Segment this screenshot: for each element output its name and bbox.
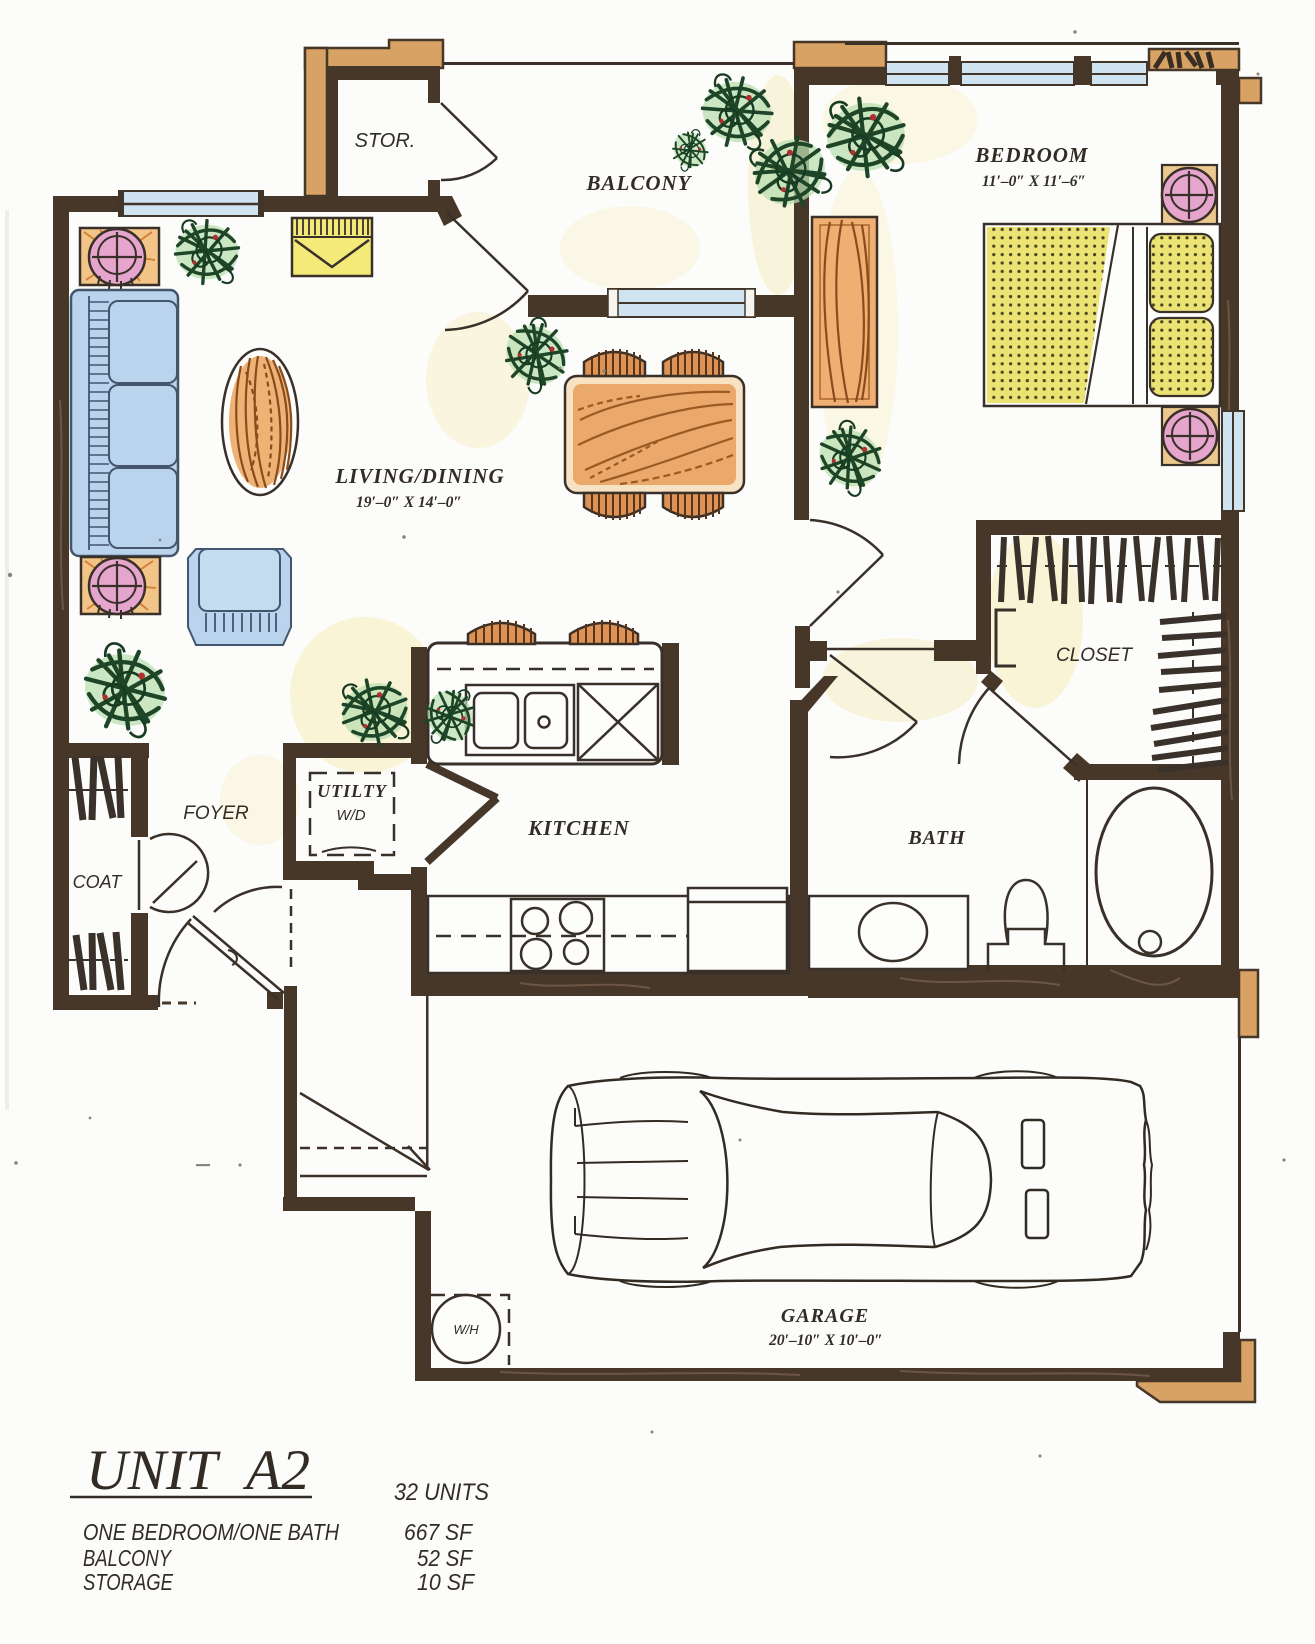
svg-text:BEDROOM: BEDROOM bbox=[974, 143, 1089, 167]
svg-text:W/H: W/H bbox=[453, 1322, 479, 1337]
svg-text:19′–0″ X 14′–0″: 19′–0″ X 14′–0″ bbox=[356, 494, 462, 511]
svg-text:CLOSET: CLOSET bbox=[1056, 645, 1133, 666]
svg-text:BALCONY: BALCONY bbox=[83, 1545, 172, 1571]
svg-text:STOR.: STOR. bbox=[355, 130, 416, 152]
svg-text:COAT: COAT bbox=[73, 872, 124, 892]
svg-text:20′–10″ X 10′–0″: 20′–10″ X 10′–0″ bbox=[768, 1332, 883, 1349]
svg-text:W/D: W/D bbox=[336, 807, 365, 824]
svg-text:UNIT A2: UNIT A2 bbox=[86, 1439, 310, 1502]
svg-text:KITCHEN: KITCHEN bbox=[527, 816, 630, 840]
svg-text:10 SF: 10 SF bbox=[417, 1569, 476, 1595]
svg-text:STORAGE: STORAGE bbox=[83, 1569, 174, 1595]
svg-text:GARAGE: GARAGE bbox=[781, 1305, 869, 1327]
svg-text:52 SF: 52 SF bbox=[417, 1545, 474, 1571]
svg-text:32 UNITS: 32 UNITS bbox=[394, 1479, 489, 1506]
svg-text:11′–0″ X 11′–6″: 11′–0″ X 11′–6″ bbox=[982, 173, 1086, 190]
svg-text:UTILTY: UTILTY bbox=[317, 781, 388, 801]
svg-text:LIVING/DINING: LIVING/DINING bbox=[334, 464, 504, 488]
svg-text:BATH: BATH bbox=[907, 827, 966, 849]
svg-text:ONE BEDROOM/ONE BATH: ONE BEDROOM/ONE BATH bbox=[83, 1519, 339, 1545]
svg-text:667 SF: 667 SF bbox=[404, 1519, 474, 1545]
svg-text:FOYER: FOYER bbox=[183, 803, 249, 824]
svg-text:BALCONY: BALCONY bbox=[585, 171, 692, 195]
